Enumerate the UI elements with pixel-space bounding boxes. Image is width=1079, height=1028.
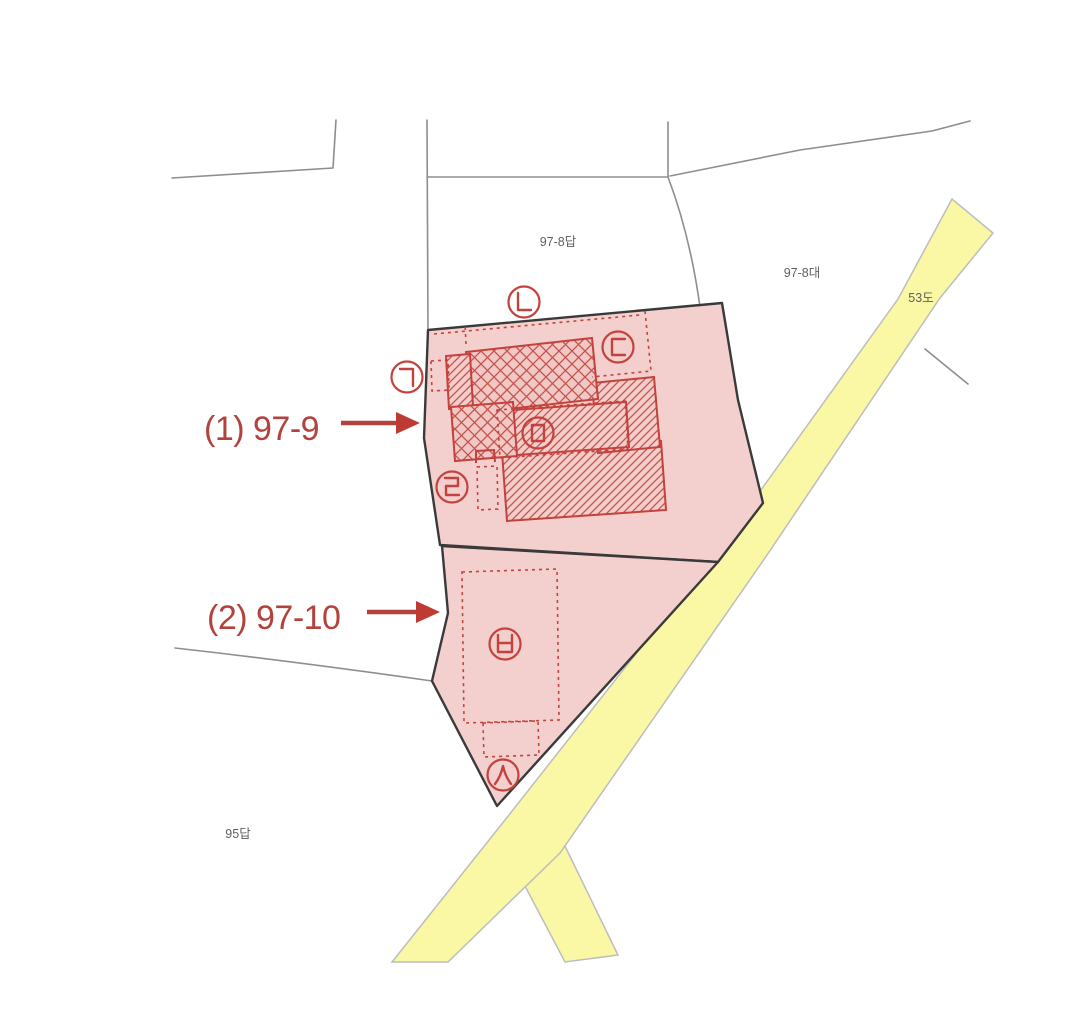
boundary-line-east-slant [668, 177, 700, 307]
boundary-line-northeast [670, 121, 970, 176]
label-97-8-dae: 97-8대 [784, 266, 821, 280]
annotation-97-10-label: (2) 97-10 [207, 599, 340, 637]
building-left-small-hatch [446, 354, 473, 409]
boundary-line-road-spur [925, 349, 968, 384]
label-97-8-dap: 97-8답 [540, 235, 577, 249]
boundary-line-west-vertical [427, 120, 428, 331]
annotation-97-10-arrowhead [416, 601, 440, 623]
map-drawing: 97-8답 97-8대 53도 95답 (1) 97-9 (2) 97-10 [0, 0, 1079, 1028]
marker-circle [509, 287, 540, 318]
building-middle-diagonal-hatch [500, 402, 629, 456]
annotation-97-9-arrowhead [396, 412, 420, 434]
letter-giyeok-icon [400, 369, 413, 386]
marker-circle [392, 362, 423, 393]
circle-marker-giyeok [392, 362, 423, 393]
boundary-line-west-curve [175, 648, 432, 681]
label-95-dap: 95답 [225, 827, 251, 841]
annotation-97-9-label: (1) 97-9 [204, 410, 319, 448]
label-53-do: 53도 [908, 291, 933, 305]
building-top-crosshatch [466, 338, 598, 413]
annotations: (1) 97-9 (2) 97-10 [204, 410, 440, 637]
boundary-line-topleft [172, 120, 336, 178]
circle-marker-nieun [509, 287, 540, 318]
letter-nieun-icon [518, 293, 531, 310]
building-left-crosshatch [451, 402, 517, 461]
cadastral-map: 97-8답 97-8대 53도 95답 (1) 97-9 (2) 97-10 [0, 0, 1079, 1028]
